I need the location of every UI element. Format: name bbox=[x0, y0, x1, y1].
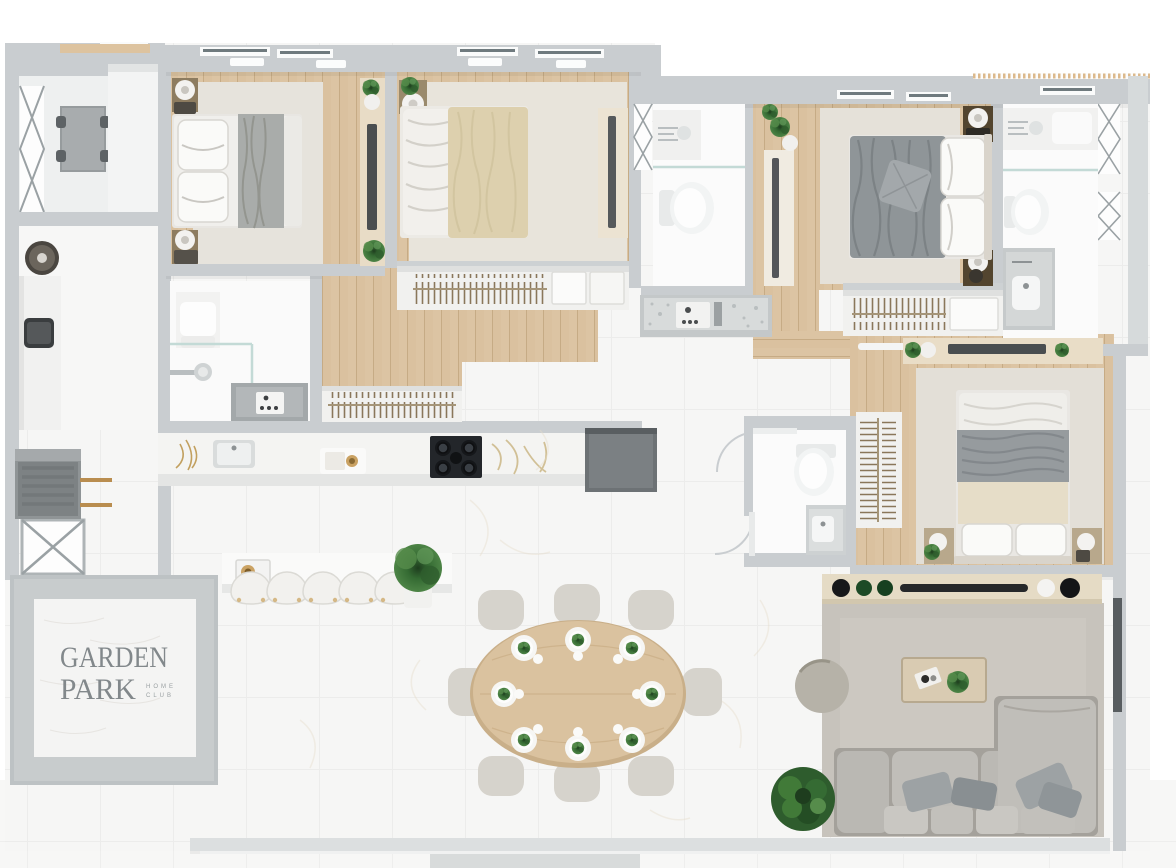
svg-text:PARK: PARK bbox=[60, 673, 136, 706]
svg-text:GARDEN: GARDEN bbox=[60, 641, 168, 674]
svg-text:CLUB: CLUB bbox=[146, 693, 174, 699]
svg-text:HOME: HOME bbox=[146, 684, 176, 690]
